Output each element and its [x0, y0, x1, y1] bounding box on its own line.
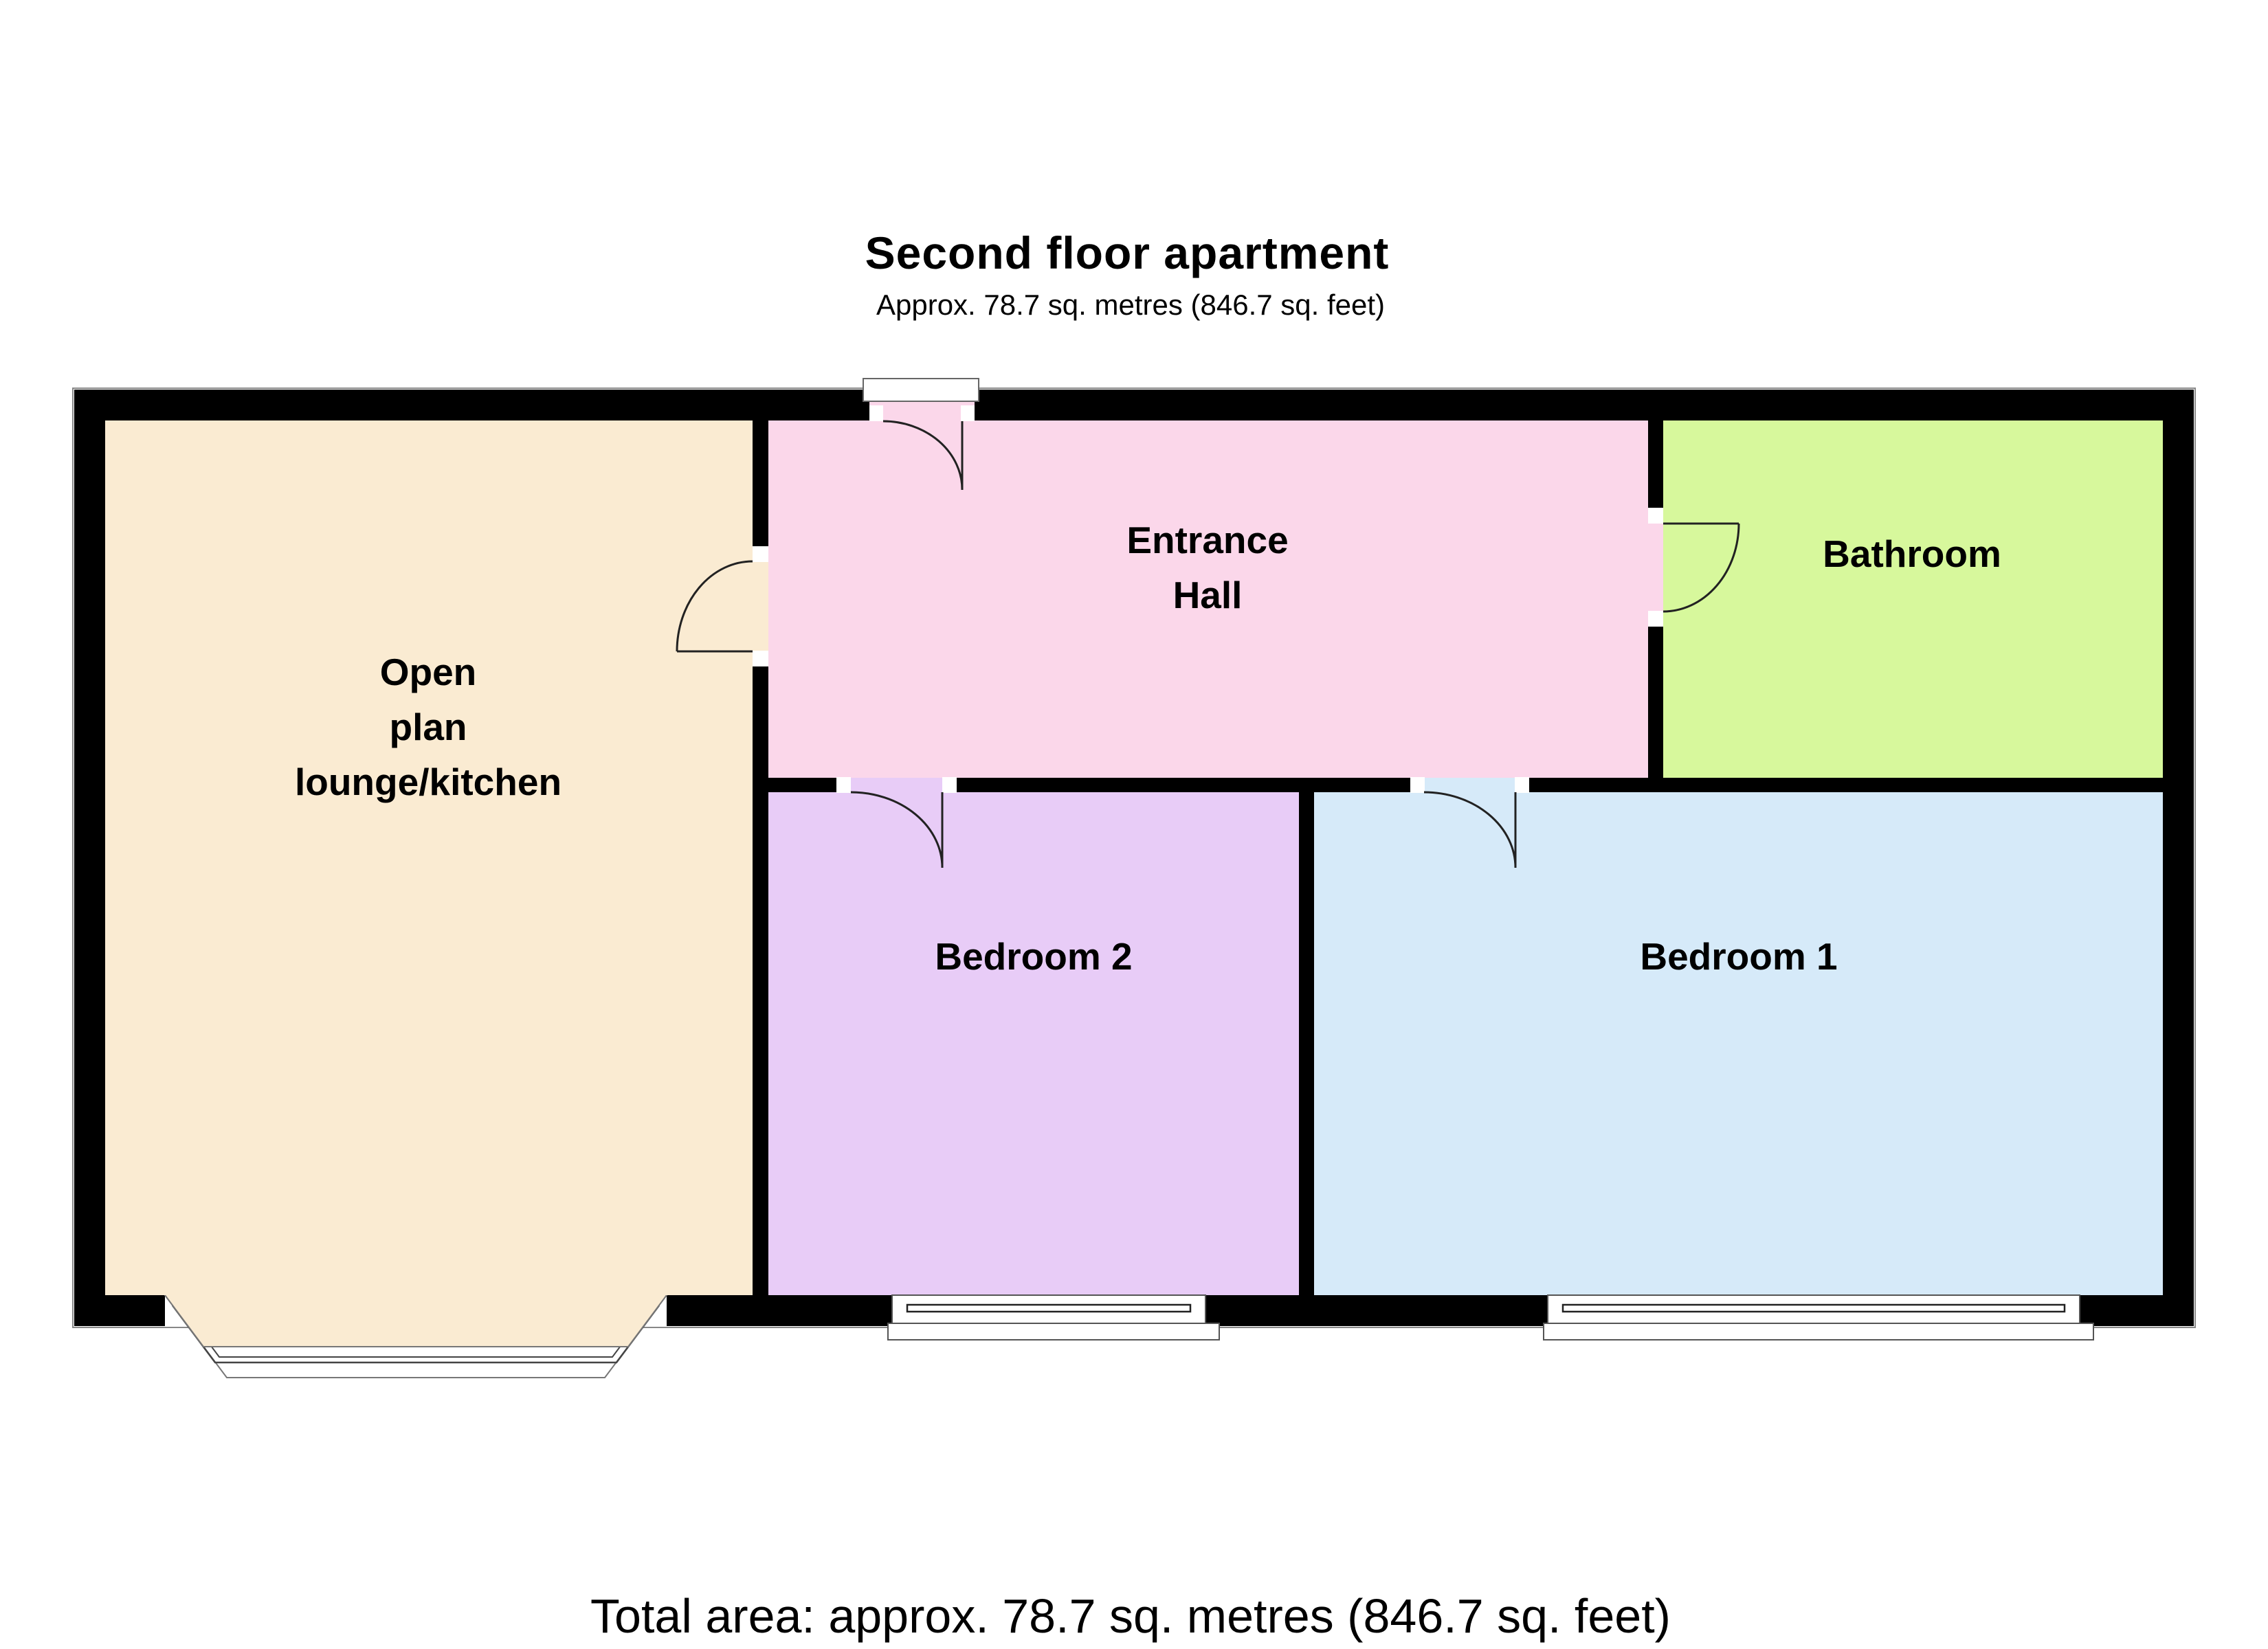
room-bathroom	[1663, 420, 2163, 778]
opening-bathroom	[1648, 524, 1663, 612]
jamb-notch	[1648, 508, 1663, 524]
jamb-notch	[836, 777, 851, 793]
jamb-notch	[869, 405, 883, 421]
jamb-notch	[753, 651, 768, 666]
page-title: Second floor apartment	[865, 227, 1390, 279]
total-area-footer: Total area: approx. 78.7 sq. metres (846…	[590, 1589, 1671, 1644]
room-bedroom-1	[1314, 792, 2163, 1295]
bay-window	[165, 1294, 667, 1378]
front-door-frame	[863, 379, 979, 401]
bay-window-floor	[165, 1295, 667, 1347]
label-entrance-hall: Entrance Hall	[1126, 513, 1288, 622]
window-sill	[1544, 1323, 2093, 1340]
opening-bedroom-1	[1410, 778, 1529, 793]
room-bedroom-2	[768, 792, 1299, 1295]
label-open-plan-lounge-kitchen: Open plan lounge/kitchen	[295, 644, 562, 809]
window-bedroom-2	[888, 1295, 1219, 1340]
label-bathroom: Bathroom	[1823, 526, 2001, 581]
room-open-plan	[105, 420, 753, 1295]
jamb-notch	[1410, 777, 1425, 793]
window-sill	[888, 1323, 1219, 1340]
jamb-notch	[1648, 611, 1663, 627]
label-bedroom-1: Bedroom 1	[1640, 929, 1837, 984]
jamb-notch	[961, 405, 975, 421]
window-bedroom-1	[1544, 1295, 2093, 1340]
floorplan-page: Second floor apartment Approx. 78.7 sq. …	[0, 0, 2268, 1649]
opening-open-plan	[753, 561, 768, 651]
opening-bedroom-2	[836, 778, 956, 793]
window-glazing	[907, 1305, 1190, 1312]
label-bedroom-2: Bedroom 2	[935, 929, 1132, 984]
jamb-notch	[1515, 777, 1529, 793]
page-subtitle: Approx. 78.7 sq. metres (846.7 sq. feet)	[876, 289, 1385, 322]
jamb-notch	[942, 777, 957, 793]
window-glazing	[1563, 1305, 2065, 1312]
jamb-notch	[753, 546, 768, 562]
